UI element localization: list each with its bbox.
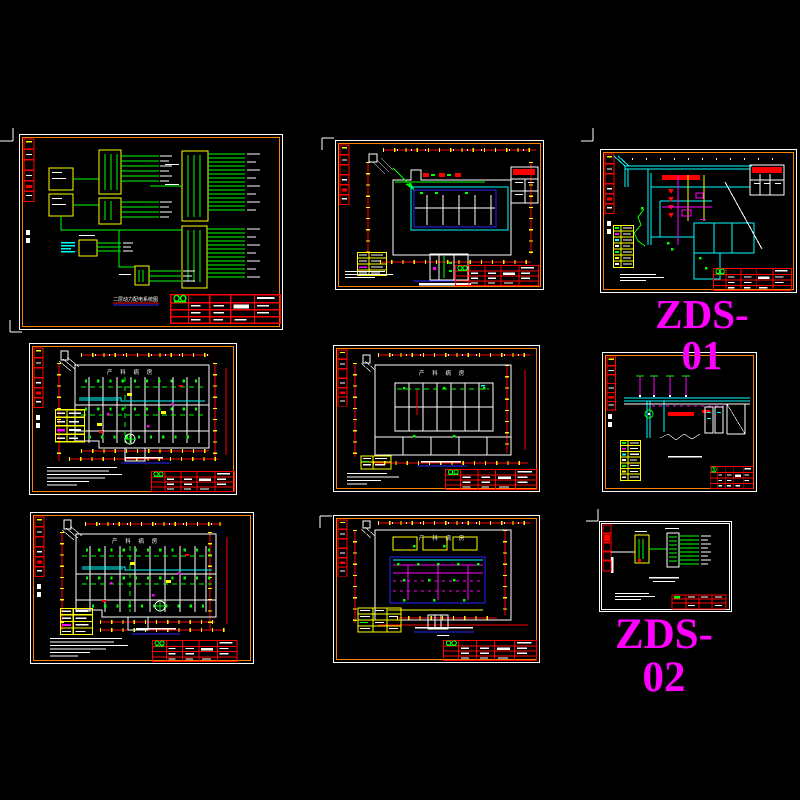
- signature-strip: [338, 520, 347, 576]
- legend-table: [613, 225, 634, 268]
- schematic: [611, 528, 711, 567]
- legend-table: [60, 608, 93, 635]
- signature-strip: [34, 348, 43, 428]
- notes: [47, 467, 122, 486]
- signature-strip: [603, 525, 614, 573]
- ward-header-text: 产 科 病 房: [107, 368, 155, 376]
- duct-plan: [614, 156, 784, 279]
- signature-strip: [605, 154, 614, 234]
- distribution-schematic: [49, 150, 260, 288]
- title-block: [710, 466, 754, 489]
- sheet-ward-plan-1[interactable]: 产 科 病 房: [29, 343, 237, 495]
- drawing-caption: 二层动力配电系统图: [113, 296, 159, 305]
- cad-model-space: 二层动力配电系统图: [0, 0, 800, 800]
- sheet-floor-plan-3-svg: 产 科 病 房: [333, 515, 540, 663]
- sheet-power-system-diagram[interactable]: 二层动力配电系统图: [19, 134, 283, 330]
- title-block: [445, 469, 537, 490]
- caption-text: 二层动力配电系统图: [113, 296, 158, 303]
- sheet-zds01-plan[interactable]: [600, 149, 797, 293]
- sheet-ward-plan-2[interactable]: 产 科 病 房: [30, 512, 254, 664]
- title-block: [672, 595, 726, 609]
- signature-strip: [607, 357, 616, 427]
- sheet-ward-plan-1-svg: 产 科 病 房: [29, 343, 237, 495]
- signature-strip: [338, 350, 347, 406]
- drawing-caption: [668, 456, 702, 457]
- legend-table: [357, 252, 387, 276]
- legend-table: [361, 456, 391, 469]
- legend-table: [620, 440, 641, 481]
- building-plan: 产 科 病 房: [62, 520, 216, 630]
- title-block: [170, 294, 281, 324]
- drawing-caption: [414, 627, 474, 636]
- sheet-floor-plan-2-svg: 产 科 病 房: [333, 345, 540, 492]
- notes: [50, 638, 128, 657]
- ward-header-text: 产 科 病 房: [419, 534, 467, 542]
- drawing-caption: [121, 457, 171, 463]
- ward-header-text: 产 科 病 房: [112, 537, 160, 545]
- sheet-floor-plan-1-svg: [335, 140, 544, 290]
- sheet-floor-plan-1[interactable]: [335, 140, 544, 290]
- legend-table: [358, 608, 401, 632]
- zds-01-group-label[interactable]: ZDS-01: [636, 294, 768, 376]
- signature-strip: [35, 517, 44, 597]
- sheet-floor-plan-2[interactable]: 产 科 病 房: [333, 345, 540, 492]
- section-drawing: [624, 376, 750, 440]
- notes: [615, 593, 655, 600]
- title-block: [152, 640, 238, 662]
- zds-02-group-label[interactable]: ZDS-02: [597, 613, 731, 699]
- ward-header-text: 产 科 病 房: [419, 369, 467, 377]
- sheet-ward-plan-2-svg: 产 科 病 房: [30, 512, 254, 664]
- building-plan: 产 科 病 房: [361, 521, 511, 629]
- notes: [347, 473, 399, 485]
- building-plan: 产 科 病 房: [59, 351, 209, 461]
- sheet-zds01-plan-svg: [600, 149, 797, 293]
- title-block: [713, 268, 792, 291]
- sheet-floor-plan-3[interactable]: 产 科 病 房: [333, 515, 540, 663]
- title-block: [151, 471, 235, 492]
- title-block: [443, 640, 537, 661]
- sheet-small-system-diagram[interactable]: [599, 521, 732, 612]
- notes: [345, 271, 393, 278]
- building-plan: 产 科 病 房: [361, 355, 511, 455]
- drawing-caption: [649, 577, 679, 582]
- sheet-power-system-svg: 二层动力配电系统图: [19, 134, 283, 330]
- notes: [620, 274, 664, 281]
- sheet-small-system-svg: [599, 521, 732, 612]
- signature-strip: [340, 145, 349, 204]
- signature-strip: [24, 139, 34, 243]
